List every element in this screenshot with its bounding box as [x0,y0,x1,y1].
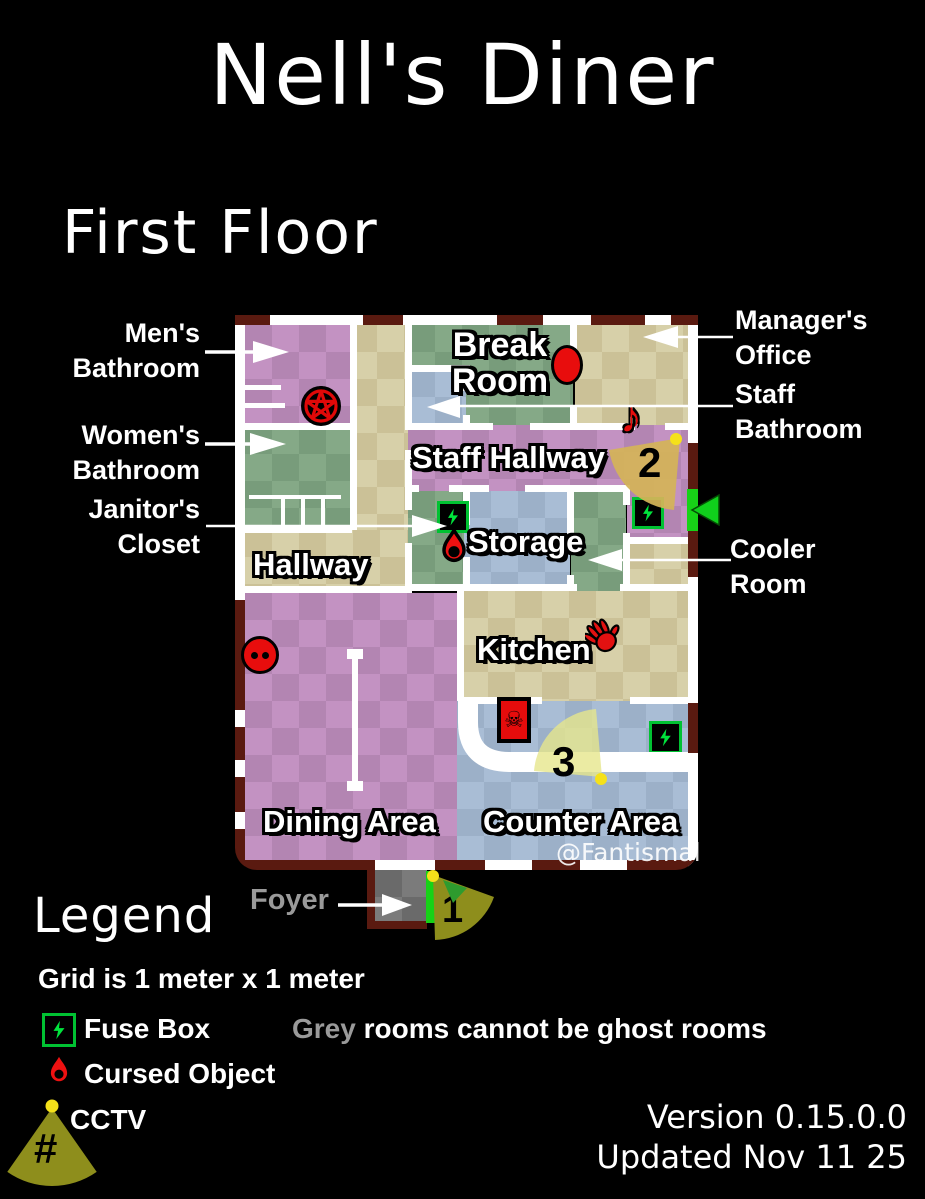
wall-segment [620,584,688,591]
legend-cctv-label: CCTV [70,1104,146,1136]
legend-grid-note: Grid is 1 meter x 1 meter [38,963,365,995]
wall-segment [245,526,352,533]
floor-title: First Floor [62,198,379,268]
exterior-wall [688,315,698,870]
dining-divider [352,655,358,787]
legend-grey-note-rest: rooms cannot be ghost rooms [356,1013,767,1044]
room-label-staff-hallway: Staff Hallway [412,440,605,476]
wall-segment [405,450,412,510]
cursed-object-icon [46,1055,72,1089]
wall-segment [405,485,419,492]
legend-cursed-object-label: Cursed Object [84,1058,275,1090]
skull-board-icon: ☠ [497,697,531,743]
cctv-dot [46,1100,59,1113]
window-segment [235,315,270,325]
callout-label-mens-bathroom: Men's Bathroom [40,316,200,385]
room-label-counter-area: Counter Area [483,804,678,840]
room-label-dining-area: Dining Area [263,804,436,840]
callout-label-womens-bathroom: Women's Bathroom [40,418,200,487]
wall-segment [630,697,688,704]
wall-segment [245,586,412,593]
legend-grey-word: Grey [292,1013,356,1044]
window-segment [375,860,435,870]
fuse-box-icon [632,497,664,529]
wall-segment [405,325,412,425]
wall-segment [457,591,464,701]
stall-line [301,495,305,531]
room-floor-foyer [375,870,427,923]
wall-segment [525,485,630,492]
wall-segment [405,584,577,591]
cctv-cone-1 [433,875,494,940]
cctv-number-1: 1 [442,889,463,931]
exterior-wall-brick [367,921,427,929]
red-circle-two-dots-icon [241,636,279,674]
watermark: @Fantismal [556,838,701,867]
updated-text: Updated Nov 11 25 [596,1138,907,1176]
window-segment [688,531,698,577]
room-floor-womens-bathroom [245,427,352,532]
window-segment [591,315,645,325]
room-label-foyer: Foyer [250,884,329,917]
wall-segment [449,485,489,492]
window-segment [235,710,245,727]
window-segment [363,315,403,325]
window-segment [497,315,543,325]
music-note-icon: ♪ [620,393,642,443]
front-entry-door[interactable] [426,871,435,923]
cursed-object-icon [438,529,470,569]
legend-grey-note: Grey rooms cannot be ghost rooms [292,1013,767,1045]
window-segment [235,812,245,829]
callout-label-cooler-room: Cooler Room [730,532,860,601]
stall-line [245,403,285,408]
room-label-hallway: Hallway [253,547,368,583]
fuse-box-icon [42,1013,76,1047]
legend-heading: Legend [33,888,215,944]
exterior-wall [235,315,245,600]
pentagram-icon [298,383,344,429]
room-label-break-room: Break Room [420,328,580,399]
legend-fuse-box-label: Fuse Box [84,1013,210,1045]
window-segment [235,760,245,777]
wall-segment [665,423,688,430]
window-segment [688,443,698,489]
wall-segment [405,423,493,430]
wall-segment [627,537,688,544]
callout-label-staff-bathroom: Staff Bathroom [735,377,885,446]
stall-line [249,495,341,499]
window-segment [671,315,698,325]
window-segment [485,860,532,870]
window-segment [688,703,698,753]
stall-line [321,495,325,531]
wall-segment [350,325,357,530]
red-hand-icon [585,618,625,658]
callout-label-managers-office: Manager's Office [735,303,905,372]
exterior-wall-brick [235,600,245,870]
room-label-kitchen: Kitchen [477,632,591,668]
wall-segment [623,492,630,505]
exterior-wall-brick [367,867,375,929]
stall-line [245,385,281,390]
entry-arrow-icon [443,880,467,903]
cctv-legend-symbol: # [34,1125,57,1172]
dining-divider-cap [347,649,363,659]
callout-label-janitors-closet: Janitor's Closet [40,492,200,561]
back-exit-door[interactable] [687,489,698,531]
stall-line [281,495,285,531]
dining-divider-cap [347,781,363,791]
room-label-storage: Storage [468,524,583,560]
page-title: Nell's Diner [0,26,925,124]
version-text: Version 0.15.0.0 [647,1098,907,1136]
fuse-box-icon [649,721,682,754]
page: Nell's Diner First Floor [0,0,925,1199]
